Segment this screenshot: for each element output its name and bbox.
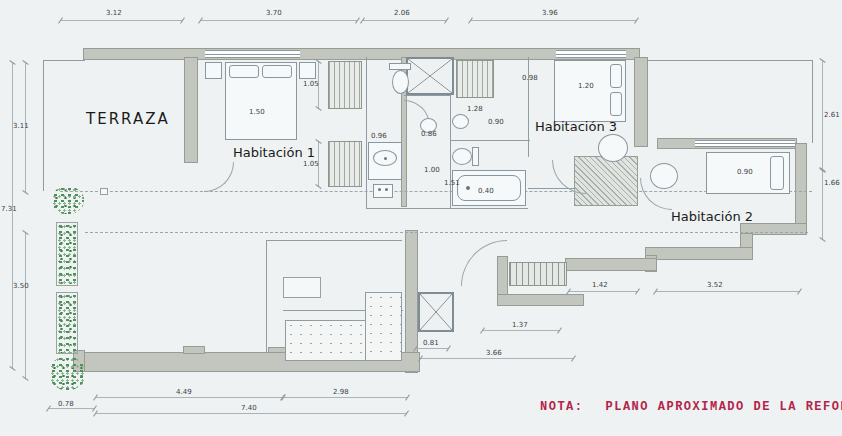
dim-label: 0.96	[371, 132, 387, 140]
dim-label: 2.98	[333, 388, 349, 396]
round-sink-2	[452, 114, 469, 129]
wall-stairs-bottom	[497, 294, 584, 306]
dim-label: 1.28	[467, 105, 483, 113]
dim-label: 0.81	[423, 339, 439, 347]
dim-label: 3.12	[106, 9, 122, 17]
dashed-line-lower	[85, 232, 808, 233]
room-label-hab3: Habitación 3	[535, 119, 617, 134]
bathtub-drain-dot	[466, 186, 470, 190]
wall-hab2-step3	[645, 247, 753, 260]
marker-box	[100, 188, 108, 195]
dim-label: 0.90	[488, 118, 504, 126]
dim-label: 1.66	[824, 179, 840, 187]
dim-label: 7.31	[1, 205, 17, 213]
toilet-bowl-1	[392, 70, 409, 94]
dimline-hall-1	[415, 348, 449, 349]
planter-2	[56, 292, 78, 354]
line-bath-west	[366, 57, 367, 208]
dimline-bottom-2	[95, 397, 283, 398]
dimline-right-2	[822, 170, 823, 240]
line-rug-vertical	[266, 240, 267, 352]
pillow-hab1-right	[262, 65, 292, 78]
dimline-hab2-1	[568, 291, 638, 292]
dimline-top-3	[362, 20, 447, 21]
note-label: NOTA:	[540, 400, 584, 414]
dim-label: 0.40	[478, 187, 494, 195]
dimline-top-2	[200, 20, 358, 21]
dimline-top-1	[60, 20, 183, 21]
nightstand-hab1-left	[205, 62, 222, 79]
dashed-line-upper	[60, 191, 812, 192]
pillow-hab3-2	[610, 92, 622, 116]
line-terraza-left	[43, 60, 44, 191]
dim-label: 1.05	[303, 80, 319, 88]
pillow-hab1-left	[229, 65, 259, 78]
dim-label: 3.11	[13, 122, 29, 130]
wall-hab2-step5	[565, 258, 657, 271]
wall-terraza-hab1-divider	[184, 57, 198, 163]
planter-1	[56, 222, 78, 286]
line-terraza-top	[43, 60, 85, 61]
dimline-hab2-2	[655, 291, 800, 292]
dim-label-bed1: 1.50	[249, 108, 265, 116]
washbasin-drain-dot	[384, 157, 387, 160]
toilet-bowl-2	[452, 148, 472, 165]
line-right-outline-top	[648, 60, 812, 61]
window-hab3	[556, 50, 626, 58]
dimline-left-2	[12, 62, 13, 369]
window-hab2	[695, 140, 795, 147]
line-bath-divider	[450, 140, 530, 141]
wall-hab2-right	[795, 143, 807, 235]
door-arc-hab1	[204, 162, 234, 192]
dim-label: 1.42	[592, 281, 608, 289]
dim-label: 3.50	[13, 282, 29, 290]
plant-bush-bottom	[50, 356, 86, 390]
plan-note: NOTA:PLANO APROXIMADO DE LA REFORMA FINA…	[540, 400, 842, 414]
dim-label: 3.52	[707, 281, 723, 289]
pillow-hab3-1	[610, 64, 622, 88]
closet-hab1-lower	[328, 141, 362, 187]
line-right-outline-side	[812, 60, 813, 143]
dim-label-bed2: 0.90	[737, 168, 753, 176]
wall-hab3-right	[634, 57, 648, 147]
appliance-dot-2	[385, 188, 388, 191]
dim-label: 3.96	[542, 9, 558, 17]
closet-hab1-upper	[328, 61, 362, 109]
dim-label: 1.37	[512, 321, 528, 329]
line-bath-south	[366, 208, 528, 209]
dim-label: 1.51	[444, 179, 460, 187]
line-rug-horizontal	[266, 240, 402, 241]
shaft-x-top	[406, 57, 454, 95]
round-chair-1	[598, 134, 628, 162]
dim-label: 0.86	[421, 130, 437, 138]
dimline-bottom-4	[95, 413, 407, 414]
dimline-left-3	[25, 232, 26, 379]
dim-label: 4.49	[176, 388, 192, 396]
round-chair-2	[650, 163, 678, 189]
dim-label: 0.78	[58, 400, 74, 408]
dimline-top-4	[470, 20, 637, 21]
dimline-right-1	[822, 60, 823, 170]
closet-hab3	[456, 60, 494, 98]
appliance-box	[373, 184, 393, 198]
dimline-hall-3	[482, 330, 560, 331]
dim-label: 1.00	[424, 166, 440, 174]
line-shaft-bottom	[404, 95, 450, 96]
sofa-vertical	[365, 292, 402, 361]
dimline-hall-2	[420, 358, 574, 359]
dim-label: 3.66	[486, 349, 502, 357]
window-hab1	[205, 50, 300, 58]
dimline-bottom-3	[283, 397, 408, 398]
dim-label: 2.61	[824, 111, 840, 119]
dim-label: 0.98	[522, 74, 538, 82]
dim-label: 2.06	[394, 9, 410, 17]
appliance-dot-1	[378, 188, 381, 191]
stairs	[509, 262, 567, 286]
dim-label: 3.70	[266, 9, 282, 17]
plant-bush-top	[52, 186, 84, 214]
toilet-tank-2	[472, 147, 479, 166]
floor-plan: 3.12 3.70 2.06 3.96 3.11 7.31 3.50 2.61 …	[0, 0, 842, 436]
room-label-terraza: TERRAZA	[86, 110, 170, 128]
door-arc-entry	[461, 240, 507, 286]
room-label-hab2: Habitación 2	[671, 209, 753, 224]
toilet-tank-1	[389, 63, 411, 70]
coffee-table	[283, 277, 321, 298]
shaft-x-entry	[418, 292, 454, 332]
nightstand-hab1-right	[299, 62, 316, 79]
pillow-hab2	[770, 156, 784, 190]
note-text: PLANO APROXIMADO DE LA REFORMA FINAL	[606, 400, 842, 414]
dim-label: 7.40	[241, 404, 257, 412]
wall-bottom-notch1	[183, 346, 205, 354]
dim-label: 1.05	[303, 160, 319, 168]
dimline-bottom-1	[48, 408, 95, 409]
dim-label-bed3: 1.20	[578, 82, 594, 90]
room-label-hab1: Habitación 1	[233, 145, 315, 160]
line-hab3-left	[528, 57, 529, 157]
